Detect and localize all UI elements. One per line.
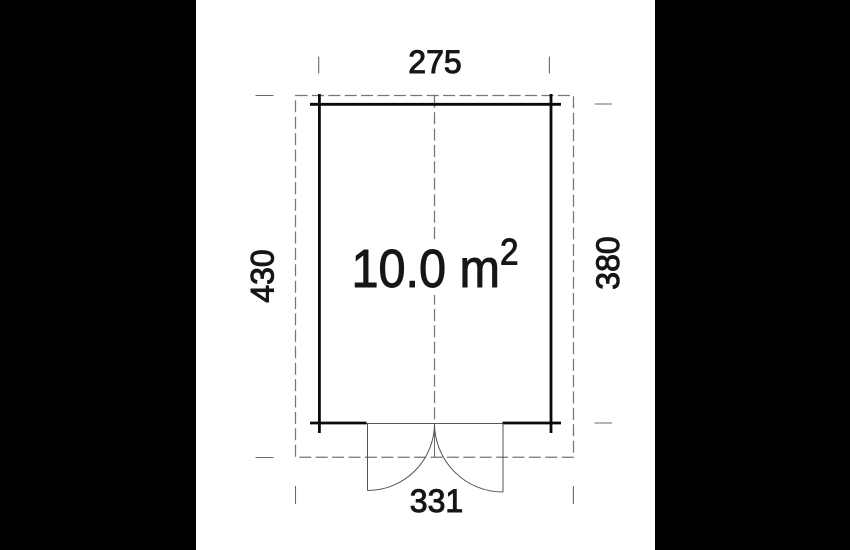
- svg-text:430: 430: [245, 249, 281, 302]
- svg-text:380: 380: [590, 236, 626, 289]
- svg-text:275: 275: [408, 44, 461, 80]
- svg-text:331: 331: [410, 483, 463, 519]
- svg-text:10.0 m2: 10.0 m2: [351, 232, 518, 298]
